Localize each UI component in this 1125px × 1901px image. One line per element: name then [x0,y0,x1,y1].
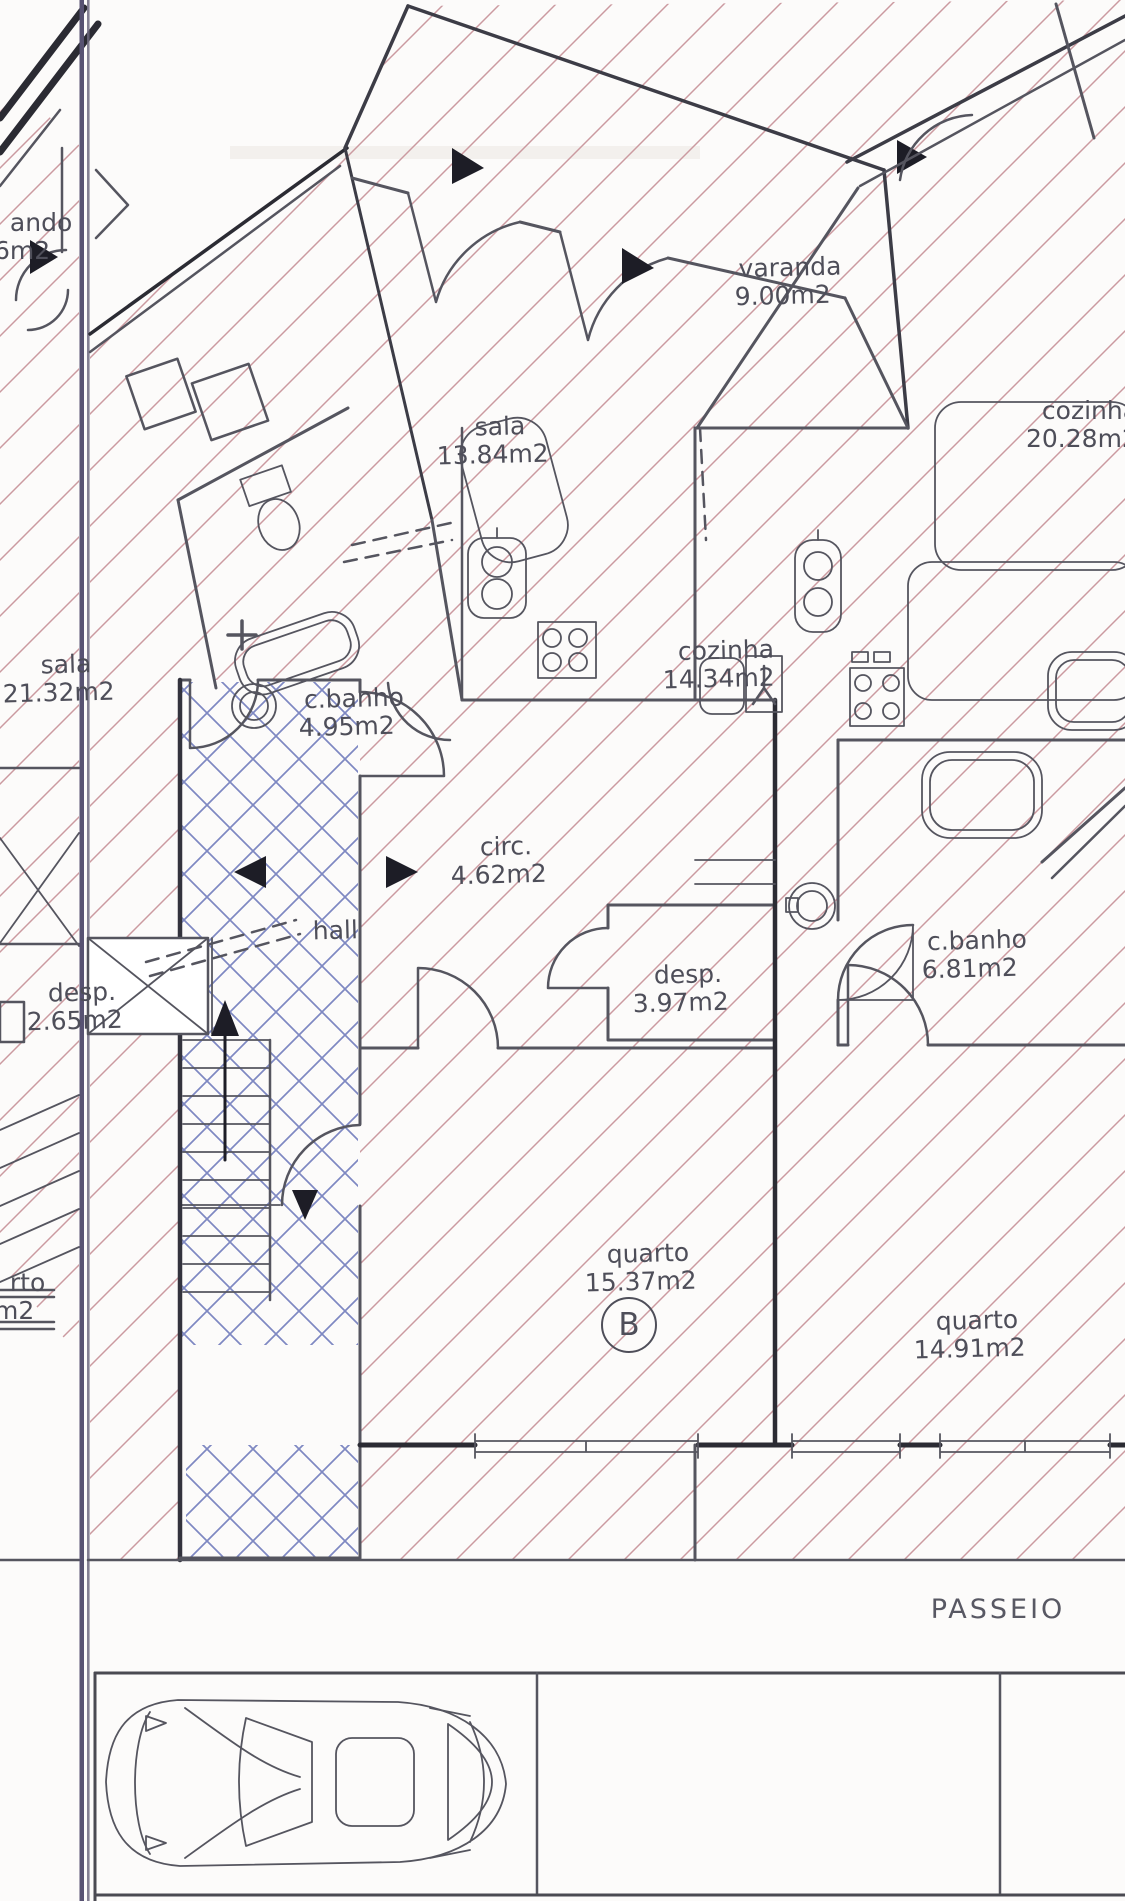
room-label-cbanho-right: c.banho6.81m2 [910,896,1028,985]
room-label-desp-b: desp.3.97m2 [631,931,729,1019]
room-label-sala-left: sala21.32m2 [1,621,115,709]
rear-window [448,1724,492,1840]
windshield [239,1718,312,1846]
room-label-quarto-b: quarto15.37m2 [583,1210,697,1298]
car-top-view [106,1700,506,1866]
room-label-varanda-left-fragment: ando6m2 [0,180,72,266]
room-label-desp-left: desp.2.65m2 [25,949,123,1037]
room-label-varanda: varanda9.00m2 [722,223,843,312]
room-label-quarto-left-fragment: rtom2 [0,1240,45,1326]
passeio-label: PASSEIO [931,1594,1066,1625]
room-label-cozinha-right: cozinha20.28m2 [1026,368,1125,454]
floor-plan-page: varanda9.00m2 sala13.84m2 cozinha14.34m2… [0,0,1125,1901]
room-label-quarto-right: quarto14.91m2 [912,1277,1026,1365]
room-label-cbanho-b: c.banho4.95m2 [287,654,405,743]
room-label-circ-b: circ.4.62m2 [449,803,547,891]
room-label-hall: hall [296,887,358,946]
headlight-icon [146,1716,166,1731]
unit-badge: B [601,1297,657,1353]
headlight-icon [146,1836,166,1850]
room-label-cozinha-b: cozinha14.34m2 [661,607,775,695]
room-label-sala-b: sala13.84m2 [435,383,549,471]
car-roof [336,1738,414,1826]
